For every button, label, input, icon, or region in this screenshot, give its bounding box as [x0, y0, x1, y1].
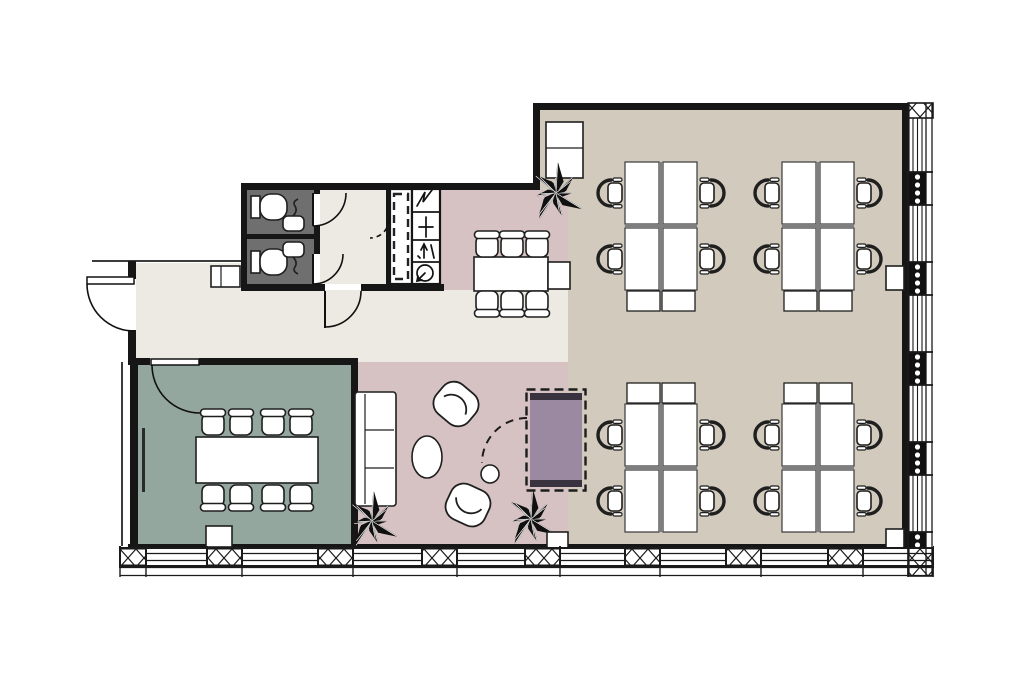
window-spandrel-hatch: [318, 549, 353, 565]
desk: [625, 228, 659, 290]
chair-armrest: [700, 447, 709, 450]
dining-table: [474, 257, 548, 291]
chair-seat: [765, 425, 779, 445]
chair-armrest: [857, 244, 866, 247]
chair-armrest: [857, 513, 866, 516]
panel-dot: [915, 280, 920, 285]
chair-armrest: [700, 178, 709, 181]
side-table: [481, 465, 499, 483]
chair-armrest: [700, 244, 709, 247]
window-spandrel-hatch: [828, 549, 863, 565]
chair-seat: [857, 425, 871, 445]
conference-chair: [525, 231, 550, 257]
storage-bench: [211, 266, 240, 287]
desk-cabinet: [627, 291, 660, 311]
accent-table-top: [530, 393, 582, 487]
chair-back: [475, 310, 500, 318]
desk-cabinet: [627, 383, 660, 403]
desk: [625, 404, 659, 466]
chair-back: [475, 231, 500, 239]
chair-seat: [608, 425, 622, 445]
conference-chair: [289, 409, 314, 435]
toilet-bowl: [260, 194, 287, 220]
chair-armrest: [770, 178, 779, 181]
chair-seat: [765, 183, 779, 203]
storage-bench: [211, 266, 240, 287]
wall: [902, 103, 908, 548]
chair-armrest: [613, 205, 622, 208]
window-corner-cap: [908, 103, 933, 118]
panel-dot: [915, 174, 920, 179]
dining-side-table: [548, 262, 570, 289]
chair-seat: [700, 249, 714, 269]
chair-armrest: [613, 420, 622, 423]
chair-seat: [700, 183, 714, 203]
chair-armrest: [700, 486, 709, 489]
panel-dot: [915, 182, 920, 187]
chair-armrest: [613, 486, 622, 489]
desk-cluster: [625, 162, 697, 311]
panel-dot: [915, 452, 920, 457]
panel-dot: [915, 444, 920, 449]
conference-chair: [229, 485, 254, 511]
chair-armrest: [700, 205, 709, 208]
desk: [625, 470, 659, 532]
chair-back: [500, 231, 525, 239]
conference-chair: [525, 291, 550, 317]
panel-dot: [915, 288, 920, 293]
panel-dot: [915, 460, 920, 465]
conference-chair: [201, 485, 226, 511]
chair-back: [289, 409, 314, 417]
coffee-table: [412, 436, 442, 478]
chair-back: [500, 310, 525, 318]
desk: [663, 228, 697, 290]
chair-seat: [700, 425, 714, 445]
desk: [663, 162, 697, 224]
desk: [782, 228, 816, 290]
desk: [663, 404, 697, 466]
chair-armrest: [857, 486, 866, 489]
chair-armrest: [700, 513, 709, 516]
desk: [820, 228, 854, 290]
conference-chair: [229, 409, 254, 435]
desk: [782, 470, 816, 532]
desk-divider: [625, 466, 697, 470]
floor-box: [206, 526, 232, 547]
chair-armrest: [857, 205, 866, 208]
chair-back: [201, 409, 226, 417]
conference-chair: [475, 231, 500, 257]
panel-dot: [915, 190, 920, 195]
entrance-door: [87, 277, 134, 331]
desk-cabinet: [784, 383, 817, 403]
desk: [782, 404, 816, 466]
chair-seat: [857, 183, 871, 203]
panel-dot: [915, 198, 920, 203]
sofa-body: [355, 392, 396, 506]
conference-chair: [500, 291, 525, 317]
wall: [128, 544, 908, 547]
wall: [137, 358, 150, 365]
desk-cluster: [782, 162, 854, 311]
chair-armrest: [770, 486, 779, 489]
window-corner-panel: [908, 548, 933, 576]
sofa: [355, 392, 396, 506]
window-spandrel-hatch: [422, 549, 457, 565]
desk-divider: [625, 224, 697, 228]
desk: [820, 162, 854, 224]
toilet-cistern: [251, 196, 260, 218]
desk-cluster: [782, 383, 854, 532]
chair-back: [525, 231, 550, 239]
chair-armrest: [857, 447, 866, 450]
desk: [782, 162, 816, 224]
chair-back: [229, 409, 254, 417]
chair-seat: [765, 249, 779, 269]
conference-chair: [261, 485, 286, 511]
panel-dot: [915, 370, 920, 375]
panel-dot: [915, 534, 920, 539]
chair-armrest: [770, 420, 779, 423]
chair-armrest: [770, 447, 779, 450]
toilet-cistern: [251, 251, 260, 273]
meeting-table: [196, 437, 318, 483]
window-spandrel-hatch: [726, 549, 761, 565]
desk-cabinet: [662, 291, 695, 311]
chair-armrest: [857, 178, 866, 181]
conference-chair: [500, 231, 525, 257]
chair-armrest: [770, 271, 779, 274]
chair-armrest: [770, 513, 779, 516]
door-swing-arc: [87, 284, 134, 331]
chair-seat: [765, 491, 779, 511]
chair-back: [289, 504, 314, 512]
chair-seat: [608, 183, 622, 203]
chair-seat: [700, 491, 714, 511]
window-spandrel-hatch: [525, 549, 560, 565]
panel-dot: [915, 542, 920, 547]
window-spandrel-hatch: [120, 549, 146, 565]
chair-back: [261, 409, 286, 417]
chair-seat: [857, 249, 871, 269]
chair-seat: [608, 491, 622, 511]
desk-cabinet: [662, 383, 695, 403]
chair-armrest: [613, 513, 622, 516]
desk-cabinet: [819, 383, 852, 403]
desk: [820, 470, 854, 532]
chair-back: [261, 504, 286, 512]
chair-armrest: [857, 420, 866, 423]
window-band-right: [908, 103, 933, 548]
wall: [314, 189, 320, 194]
desk-cabinet: [784, 291, 817, 311]
wall: [199, 358, 358, 365]
desk-cluster: [625, 383, 697, 532]
door-leaf: [87, 277, 134, 284]
conference-chair: [201, 409, 226, 435]
wall: [247, 234, 314, 239]
wc-lobby: [320, 190, 386, 284]
window-spandrel-hatch: [207, 549, 242, 565]
desk-divider: [782, 224, 854, 228]
chair-seat: [608, 249, 622, 269]
conference-chair: [475, 291, 500, 317]
desk: [820, 404, 854, 466]
door-leaf: [151, 359, 199, 365]
wall: [130, 358, 138, 548]
chair-armrest: [613, 447, 622, 450]
core-shaft-layer: [390, 189, 440, 284]
chair-armrest: [700, 420, 709, 423]
panel-dot: [915, 362, 920, 367]
wall: [241, 183, 247, 290]
chair-armrest: [700, 271, 709, 274]
chair-armrest: [613, 271, 622, 274]
desk: [663, 470, 697, 532]
chair-armrest: [613, 178, 622, 181]
chair-back: [525, 310, 550, 318]
chair-armrest: [857, 271, 866, 274]
sink: [283, 216, 304, 231]
tall-cabinet: [546, 122, 583, 178]
panel-dot: [915, 468, 920, 473]
desk-cabinet: [819, 291, 852, 311]
wall: [314, 226, 320, 254]
chair-seat: [857, 491, 871, 511]
accent-table-end: [530, 393, 582, 400]
sink: [283, 242, 304, 257]
desk-divider: [782, 466, 854, 470]
window-spandrel-hatch: [625, 549, 660, 565]
conference-chair: [261, 409, 286, 435]
panel-dot: [915, 272, 920, 277]
wall: [533, 103, 908, 110]
floor-plan: [0, 0, 1024, 683]
panel-dot: [915, 354, 920, 359]
lounge-corner-box: [547, 532, 568, 549]
wall-cabinet: [886, 266, 904, 290]
conference-chair: [289, 485, 314, 511]
floor-plan-canvas: [0, 0, 1024, 683]
whiteboard: [142, 428, 145, 492]
panel-dot: [915, 378, 920, 383]
chair-back: [229, 504, 254, 512]
chair-armrest: [613, 244, 622, 247]
chair-back: [201, 504, 226, 512]
accent-table-end: [530, 480, 582, 487]
wall: [241, 284, 325, 291]
tall-cabinet: [546, 122, 583, 178]
panel-dot: [915, 264, 920, 269]
chair-armrest: [770, 205, 779, 208]
desk: [625, 162, 659, 224]
chair-armrest: [770, 244, 779, 247]
